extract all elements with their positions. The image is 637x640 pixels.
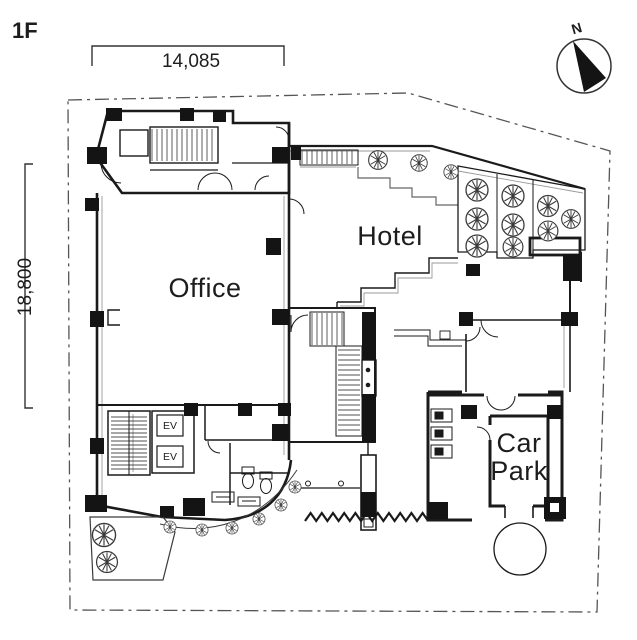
tree-icon <box>503 237 523 257</box>
escalator-hatch <box>302 151 352 164</box>
hotel-label: Hotel <box>357 221 423 251</box>
lower-wall-details <box>291 442 428 530</box>
stair-hatch-annex <box>152 129 212 161</box>
floor-plan-drawing: 14,085 18,800 1F N Office Hotel Car Park… <box>0 0 637 640</box>
shrub-icon <box>289 481 301 493</box>
shrub-icon <box>275 499 287 511</box>
tree-icon <box>538 221 558 241</box>
carpark-corner-hole <box>550 503 559 512</box>
floor-label: 1F <box>12 18 38 43</box>
floor-plan-page: 14,085 18,800 1F N Office Hotel Car Park… <box>0 0 637 640</box>
stair-hatch-central <box>338 350 360 430</box>
tree-icon <box>562 210 581 229</box>
tree-icon <box>466 208 488 230</box>
compass-n-label: N <box>570 19 584 37</box>
elevator-label-1: EV <box>163 420 177 432</box>
left-dimension-label: 18,800 <box>15 258 36 316</box>
site-boundary-line <box>68 93 610 612</box>
elevator-label-2: EV <box>163 451 177 463</box>
office-annex <box>96 111 289 193</box>
tree-icon <box>97 552 118 573</box>
tree-icon <box>502 214 524 236</box>
office-label: Office <box>168 273 241 303</box>
shrub-icon <box>196 524 208 536</box>
carpark-label-line1: Car <box>496 428 541 458</box>
shrub-icon <box>164 521 176 533</box>
top-dimension-label: 14,085 <box>162 51 220 72</box>
office-service-zone <box>97 405 289 506</box>
tree-icon <box>466 235 488 257</box>
dimension-annotations: 14,085 18,800 1F <box>12 18 284 408</box>
tree-icon <box>92 523 115 546</box>
carpark-label-line2: Park <box>490 456 548 486</box>
shrub-icon <box>253 513 265 525</box>
tree-icon <box>502 185 524 207</box>
tree-icon <box>466 179 488 201</box>
car-turntable <box>494 523 546 575</box>
shrub-icon <box>226 522 238 534</box>
tree-icon <box>538 196 559 217</box>
tree-icon <box>411 155 428 172</box>
north-arrow: N <box>557 19 611 93</box>
hotel-block <box>289 146 585 346</box>
right-wing <box>460 320 575 392</box>
tree-icon <box>444 165 458 179</box>
carpark-fixtures <box>431 409 452 458</box>
tree-icon <box>369 151 388 170</box>
north-needle <box>573 41 606 92</box>
